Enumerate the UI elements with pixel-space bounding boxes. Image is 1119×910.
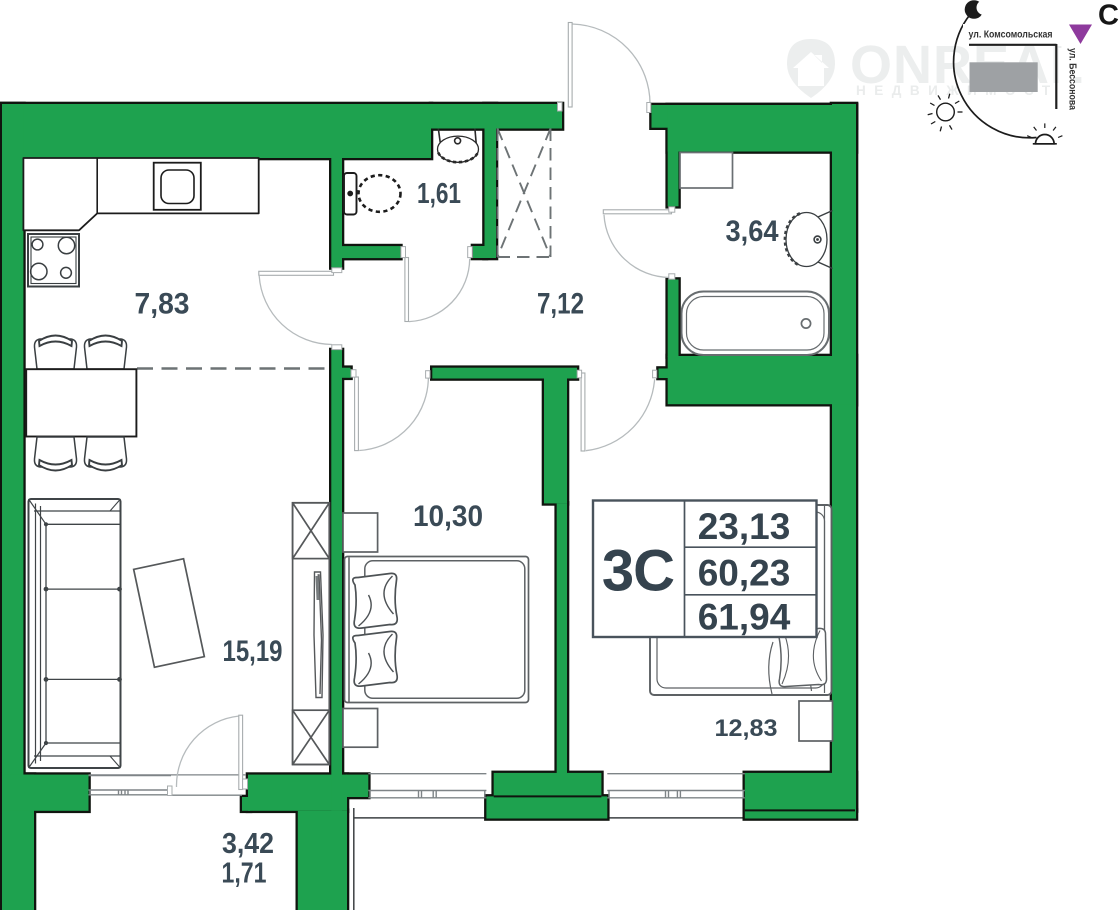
svg-text:ул. Комсомольская: ул. Комсомольская [969,30,1053,41]
svg-text:1,71: 1,71 [222,858,267,890]
svg-text:НЕДВИЖИМОСТЬ: НЕДВИЖИМОСТЬ [856,83,1077,98]
svg-text:12,83: 12,83 [715,715,778,742]
svg-text:15,19: 15,19 [223,635,283,668]
svg-text:С: С [1098,0,1119,32]
svg-text:61,94: 61,94 [698,597,791,638]
svg-text:3,42: 3,42 [222,828,274,860]
svg-text:ул. Бессонова: ул. Бессонова [1067,48,1078,110]
svg-text:3С: 3С [602,539,674,604]
svg-text:1,61: 1,61 [417,178,461,210]
svg-text:23,13: 23,13 [698,506,791,547]
svg-text:3,64: 3,64 [726,215,779,248]
svg-text:7,83: 7,83 [135,288,190,321]
svg-text:60,23: 60,23 [698,553,791,594]
svg-text:10,30: 10,30 [413,500,483,533]
svg-text:7,12: 7,12 [537,288,584,321]
